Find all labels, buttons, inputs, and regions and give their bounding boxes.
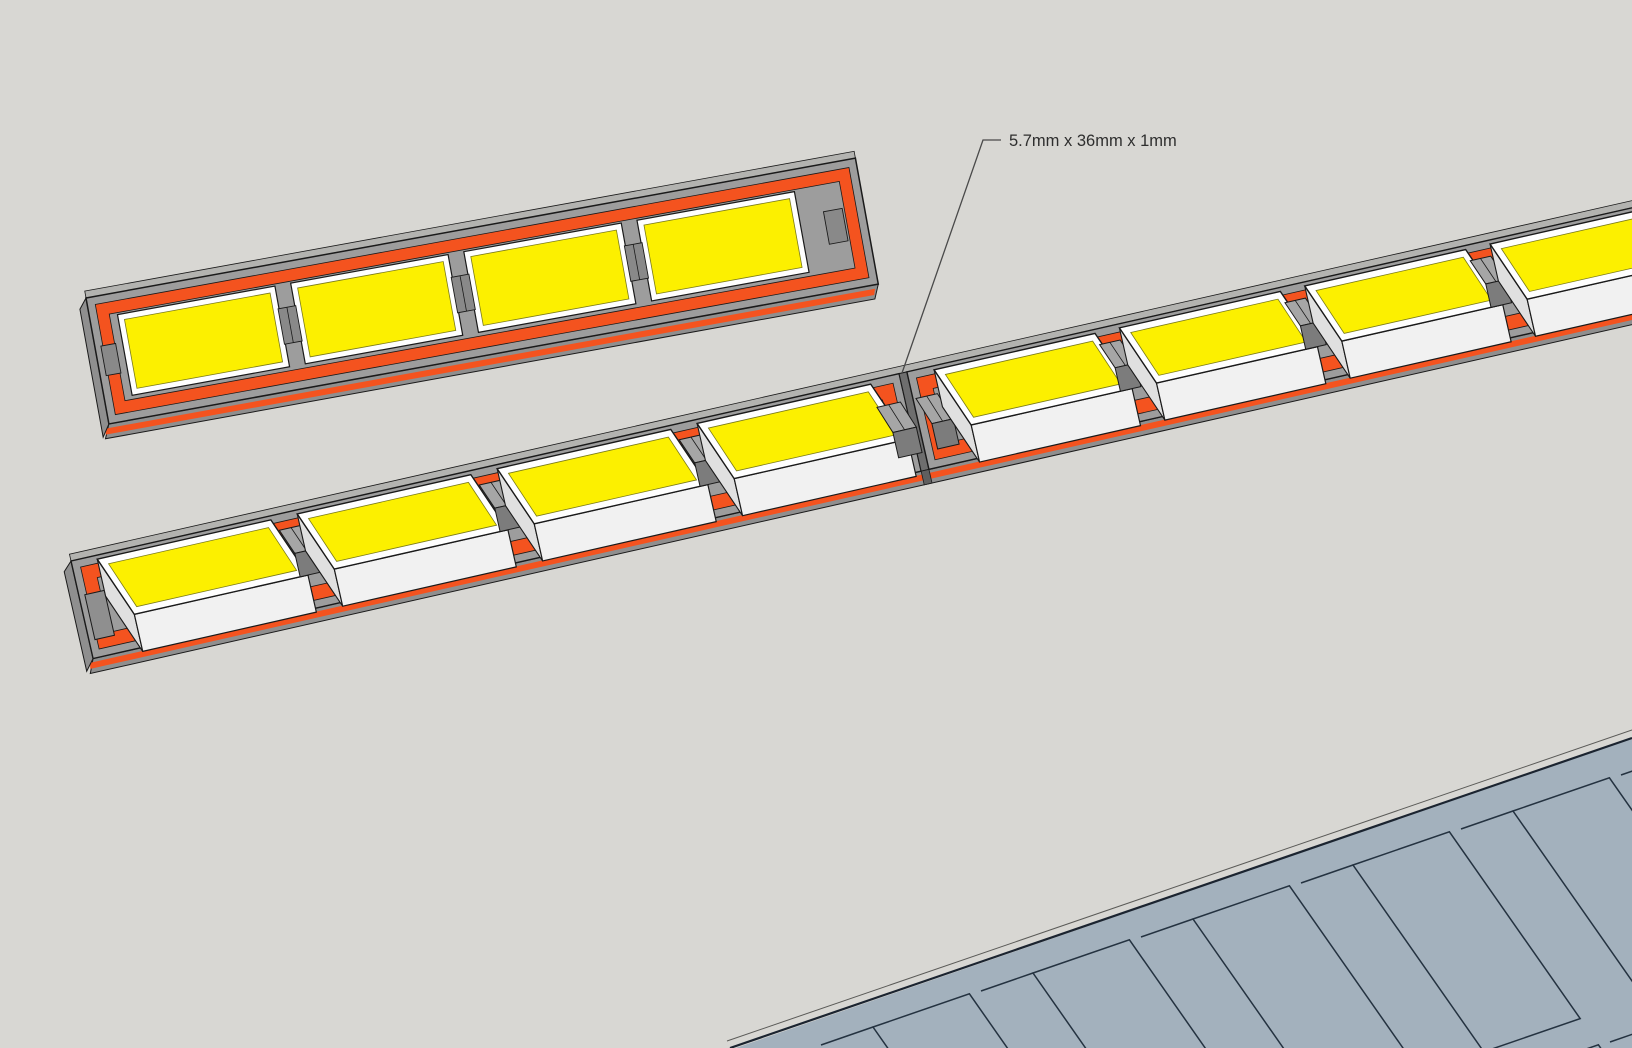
connector-front-face <box>893 427 922 458</box>
dimension-label: 5.7mm x 36mm x 1mm <box>1009 132 1177 150</box>
cad-viewport[interactable]: 5.7mm x 36mm x 1mm <box>0 0 1632 1048</box>
